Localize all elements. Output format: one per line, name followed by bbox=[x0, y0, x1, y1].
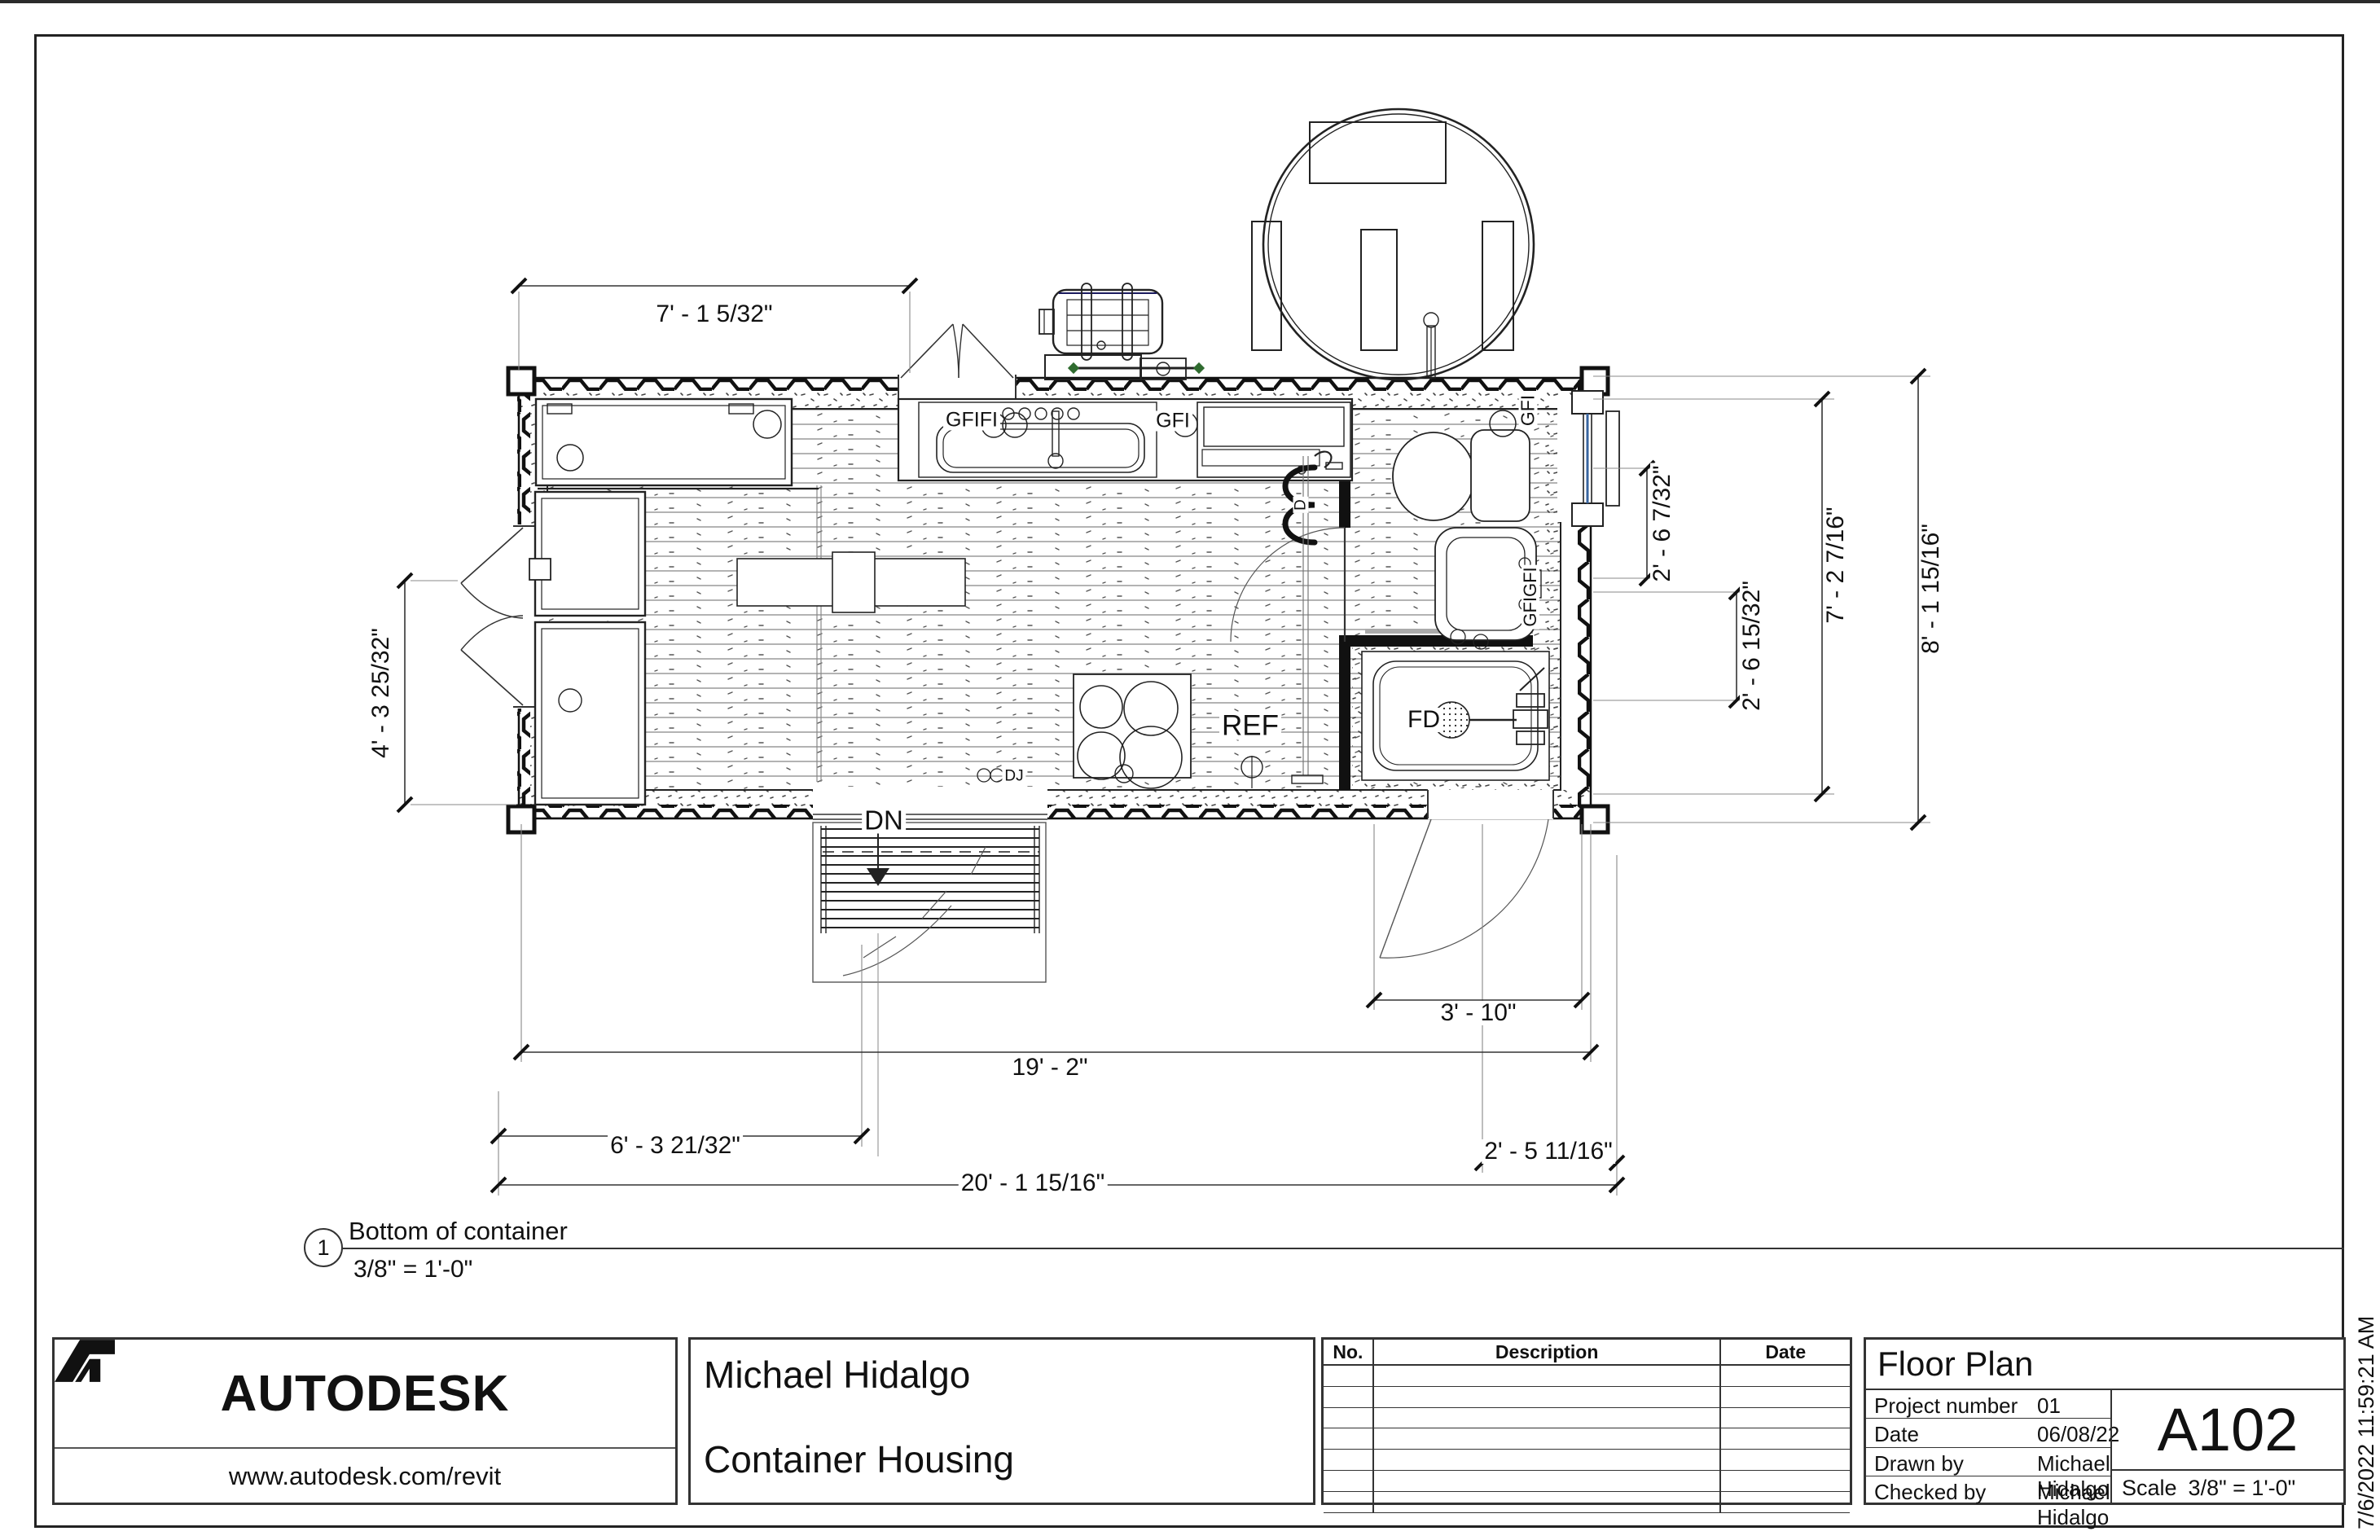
info-field-value: 01 bbox=[2037, 1393, 2061, 1419]
logo-row: AUTODESK bbox=[55, 1340, 675, 1449]
plan-label: GFIFI bbox=[943, 410, 1000, 431]
revision-row bbox=[1324, 1450, 1850, 1471]
revision-row bbox=[1324, 1471, 1850, 1492]
sheet-number: A102 bbox=[2110, 1390, 2343, 1471]
revision-cell bbox=[1721, 1450, 1850, 1470]
dimension-text: 3' - 10" bbox=[1438, 1001, 1518, 1025]
dimension-text: 2' - 5 11/16" bbox=[1482, 1139, 1615, 1164]
exterior-tank bbox=[1039, 283, 1205, 380]
autodesk-logo-icon bbox=[55, 1340, 115, 1382]
revision-cell bbox=[1324, 1428, 1374, 1449]
view-number: 1 bbox=[317, 1235, 329, 1261]
floor-plan-drawing bbox=[0, 0, 2380, 1540]
dimension-text: 8' - 1 15/16" bbox=[1919, 521, 1943, 656]
info-field-row: Date06/08/22 bbox=[1866, 1419, 2110, 1447]
revision-cell bbox=[1721, 1366, 1850, 1386]
revision-row bbox=[1324, 1492, 1850, 1513]
revision-cell bbox=[1374, 1471, 1722, 1491]
revision-cell bbox=[1374, 1366, 1722, 1386]
plan-label: GFI bbox=[1519, 393, 1538, 428]
sheet-title: Floor Plan bbox=[1866, 1340, 2343, 1390]
titleblock-logo-panel: AUTODESK www.autodesk.com/revit bbox=[52, 1337, 678, 1505]
autodesk-logo-text: AUTODESK bbox=[221, 1365, 510, 1423]
info-field-value: 06/08/22 bbox=[2037, 1422, 2119, 1447]
dimension-text: 2' - 6 15/32" bbox=[1740, 578, 1764, 713]
plan-label: REF bbox=[1219, 712, 1281, 740]
revision-cell bbox=[1324, 1387, 1374, 1407]
revision-cell bbox=[1721, 1408, 1850, 1428]
dimension-text: 2' - 6 7/32" bbox=[1650, 463, 1675, 584]
revision-cell bbox=[1374, 1450, 1722, 1470]
drawing-sheet: GFIFIGFIGFIGFIGFIDDJREFDNFD 7' - 1 5/32"… bbox=[0, 0, 2380, 1540]
revision-table-header: No. Description Date bbox=[1324, 1340, 1850, 1366]
revision-cell bbox=[1324, 1408, 1374, 1428]
info-field-row: Checked byMichael Hidalgo bbox=[1866, 1476, 2110, 1505]
revision-row bbox=[1324, 1408, 1850, 1429]
view-title-line bbox=[342, 1248, 2344, 1249]
revision-cell bbox=[1374, 1428, 1722, 1449]
plan-label: D bbox=[1293, 497, 1309, 513]
revision-table-body bbox=[1324, 1366, 1850, 1513]
scale-value: 3/8" = 1'-0" bbox=[2189, 1476, 2296, 1501]
info-field-label: Project number bbox=[1874, 1393, 2018, 1419]
client-name: Michael Hidalgo bbox=[704, 1353, 970, 1397]
exterior-hot-tub bbox=[1252, 109, 1534, 380]
revision-row bbox=[1324, 1387, 1850, 1408]
revision-row bbox=[1324, 1428, 1850, 1450]
print-timestamp: 7/6/2022 11:59:21 AM bbox=[2354, 1316, 2379, 1529]
titleblock-info-panel: Floor Plan Project number01Date06/08/22D… bbox=[1864, 1337, 2346, 1505]
plan-label: GFIGFI bbox=[1522, 564, 1539, 629]
dimension-text: 7' - 1 5/32" bbox=[653, 302, 775, 327]
shower bbox=[1352, 647, 1561, 790]
revision-cell bbox=[1324, 1450, 1374, 1470]
revision-col-description: Description bbox=[1374, 1340, 1722, 1364]
stairs bbox=[813, 823, 1046, 1156]
info-field-label: Checked by bbox=[1874, 1480, 1986, 1505]
view-number-bubble: 1 bbox=[304, 1228, 343, 1267]
plan-label: GFI bbox=[1153, 411, 1192, 432]
info-field-value: Michael Hidalgo bbox=[2037, 1480, 2110, 1530]
window bbox=[1557, 391, 1619, 526]
scale-cell: Scale 3/8" = 1'-0" bbox=[2110, 1471, 2343, 1505]
revision-cell bbox=[1721, 1471, 1850, 1491]
dimension-text: 20' - 1 15/16" bbox=[959, 1171, 1108, 1196]
plan-label: DN bbox=[862, 807, 906, 834]
revision-row bbox=[1324, 1366, 1850, 1387]
revision-cell bbox=[1721, 1492, 1850, 1512]
revision-cell bbox=[1324, 1366, 1374, 1386]
revision-cell bbox=[1374, 1387, 1722, 1407]
plan-label: DJ bbox=[1002, 769, 1025, 784]
dimension-text: 6' - 3 21/32" bbox=[608, 1134, 743, 1158]
revision-cell bbox=[1374, 1408, 1722, 1428]
revision-cell bbox=[1721, 1428, 1850, 1449]
revision-cell bbox=[1721, 1387, 1850, 1407]
revision-cell bbox=[1324, 1492, 1374, 1512]
titleblock-names-panel: Michael Hidalgo Container Housing bbox=[688, 1337, 1315, 1505]
revision-cell bbox=[1324, 1471, 1374, 1491]
plan-label: FD bbox=[1405, 708, 1442, 732]
info-field-row: Drawn byMichael Hidalgo bbox=[1866, 1448, 2110, 1476]
autodesk-url: www.autodesk.com/revit bbox=[55, 1449, 675, 1504]
dimension-text: 4' - 3 25/32" bbox=[369, 625, 393, 761]
info-field-label: Drawn by bbox=[1874, 1451, 1964, 1476]
info-field-label: Date bbox=[1874, 1422, 1919, 1447]
dimension-text: 19' - 2" bbox=[1009, 1055, 1090, 1080]
scale-label: Scale bbox=[2122, 1476, 2177, 1501]
revision-cell bbox=[1374, 1492, 1722, 1512]
view-scale: 3/8" = 1'-0" bbox=[353, 1256, 472, 1283]
view-title: Bottom of container bbox=[349, 1217, 568, 1246]
revision-col-no: No. bbox=[1324, 1340, 1374, 1364]
revision-table: No. Description Date bbox=[1321, 1337, 1852, 1505]
info-grid: Project number01Date06/08/22Drawn byMich… bbox=[1866, 1390, 2343, 1505]
info-field-row: Project number01 bbox=[1866, 1390, 2110, 1419]
project-name: Container Housing bbox=[704, 1437, 1014, 1481]
revision-col-date: Date bbox=[1721, 1340, 1850, 1364]
dimension-text: 7' - 2 7/16" bbox=[1824, 504, 1848, 625]
